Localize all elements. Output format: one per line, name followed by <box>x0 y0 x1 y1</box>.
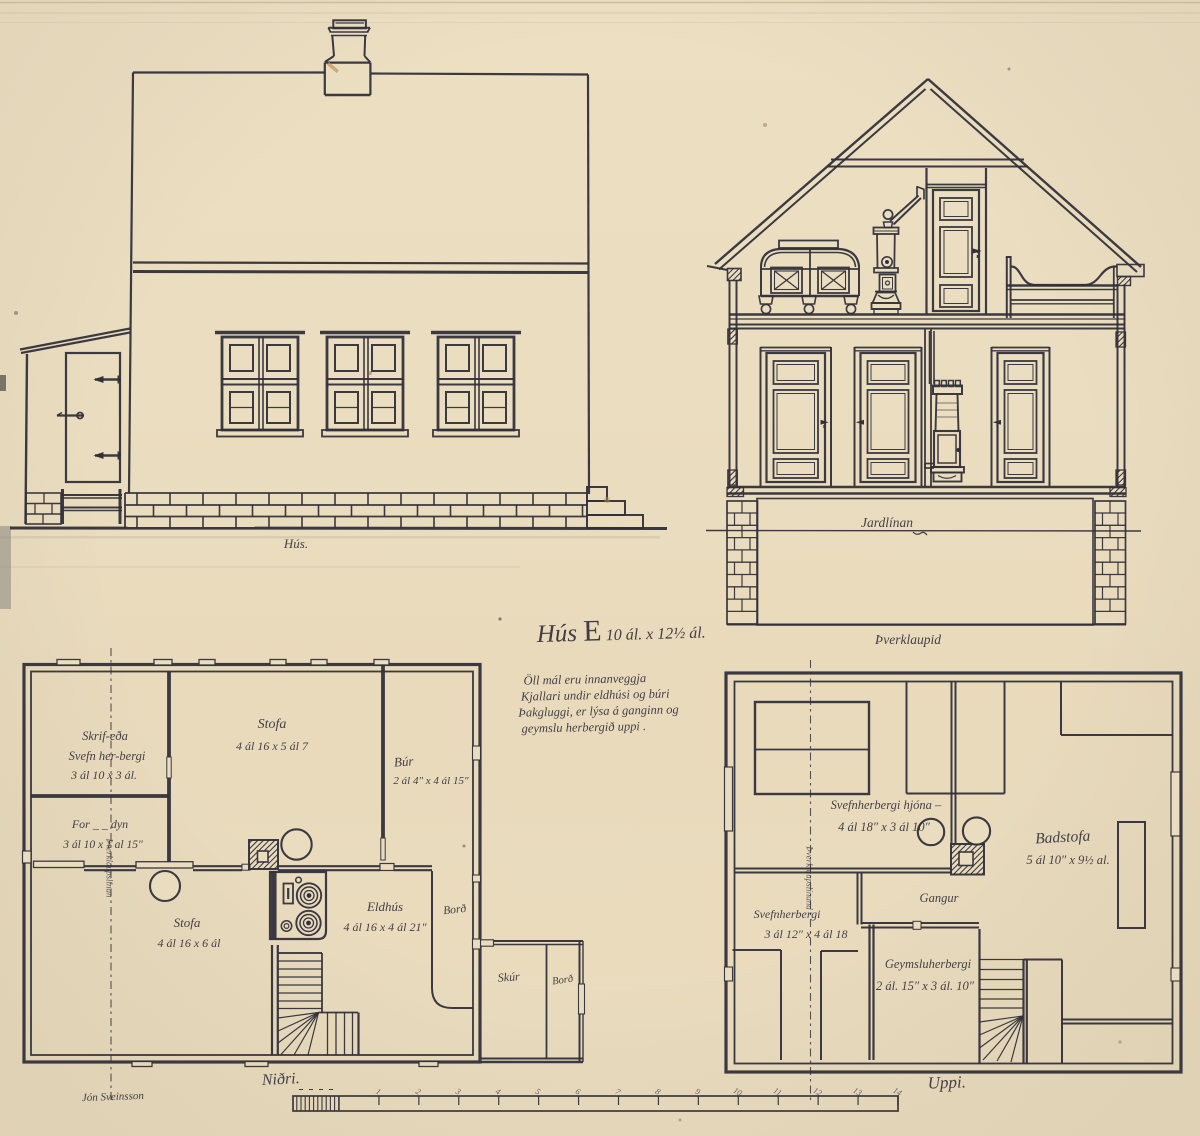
svg-text:Búr: Búr <box>393 753 414 769</box>
svg-text:Niðri.: Niðri. <box>260 1070 300 1089</box>
svg-text:Þverklaupslínand: Þverklaupslínand <box>805 845 815 910</box>
svg-text:Þverklaupslínan: Þverklaupslínan <box>105 838 115 898</box>
svg-text:3 ál 10 x 3 ál.: 3 ál 10 x 3 ál. <box>70 768 137 782</box>
svg-text:Eldhús: Eldhús <box>366 899 403 914</box>
svg-text:Öll mál eru innanveggja: Öll mál eru innanveggja <box>523 670 646 688</box>
svg-text:3 ál 12″ x 4 ál 18: 3 ál 12″ x 4 ál 18 <box>764 927 848 941</box>
svg-text:Hús.: Hús. <box>283 536 308 551</box>
svg-text:4 ál 18″ x 3 ál 10″: 4 ál 18″ x 3 ál 10″ <box>838 820 930 834</box>
svg-text:Stofa: Stofa <box>174 915 201 930</box>
svg-text:Jón Sveinsson: Jón Sveinsson <box>82 1090 145 1104</box>
svg-text:geymslu herbergið uppi .: geymslu herbergið uppi . <box>521 719 646 736</box>
svg-text:Skrif-eða: Skrif-eða <box>82 729 128 743</box>
svg-text:4 ál 16 x 6 ál: 4 ál 16 x 6 ál <box>158 936 222 950</box>
svg-text:Uppi.: Uppi. <box>927 1072 966 1092</box>
svg-text:Borð: Borð <box>443 902 467 917</box>
svg-text:Svefnherbergi hjóna –: Svefnherbergi hjóna – <box>831 798 942 812</box>
svg-text:For _ _ dyn: For _ _ dyn <box>71 817 128 831</box>
svg-text:Gangur: Gangur <box>920 891 959 905</box>
svg-text:Badstofa: Badstofa <box>1035 828 1091 848</box>
svg-text:Jardlínan: Jardlínan <box>861 515 913 530</box>
svg-text:4 ál 16 x 5 ál 7: 4 ál 16 x 5 ál 7 <box>236 739 309 753</box>
svg-text:2 ál 4″ x 4 ál 15″: 2 ál 4″ x 4 ál 15″ <box>393 775 469 787</box>
svg-text:Þverklaupid: Þverklaupid <box>874 632 941 647</box>
svg-text:Stofa: Stofa <box>258 717 287 732</box>
svg-text:Svefn her-bergi: Svefn her-bergi <box>69 749 146 763</box>
svg-text:2 ál. 15″ x 3 ál. 10″: 2 ál. 15″ x 3 ál. 10″ <box>876 979 975 993</box>
svg-text:4 ál 16 x 4 ál 21″: 4 ál 16 x 4 ál 21″ <box>344 920 428 934</box>
svg-text:5 ál 10″ x 9½ al.: 5 ál 10″ x 9½ al. <box>1026 853 1109 867</box>
svg-text:Skúr: Skúr <box>497 969 520 985</box>
svg-text:Geymsluherbergi: Geymsluherbergi <box>885 957 972 971</box>
svg-text:3 ál 10 x 1 al 15″: 3 ál 10 x 1 al 15″ <box>62 839 143 851</box>
